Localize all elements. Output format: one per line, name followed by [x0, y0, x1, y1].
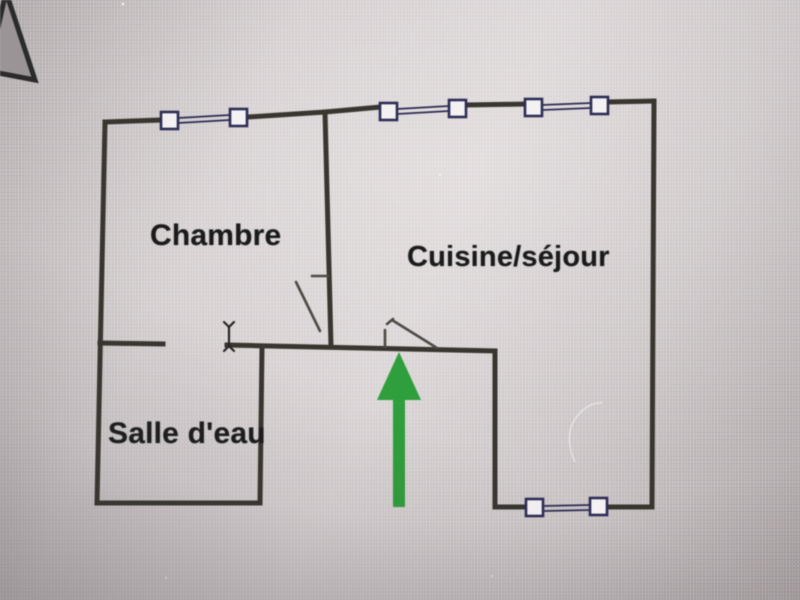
window-symbol-chambre-top [161, 109, 247, 129]
dust-speck [491, 575, 493, 577]
room-label-chambre: Chambre [150, 219, 281, 253]
window-symbol-cuisine-top-right [525, 97, 608, 116]
corner-triangle-shape [0, 0, 35, 80]
door-symbol-entrance [385, 319, 437, 348]
dust-speck [122, 3, 125, 6]
entrance-arrow-icon [377, 352, 421, 507]
photographed-screen: Chambre Cuisine/séjour Salle d'eau [0, 0, 800, 600]
room-label-cuisine-sejour: Cuisine/séjour [407, 241, 610, 274]
window-symbol-cuisine-bottom [526, 498, 607, 516]
door-symbol-chambre [296, 276, 328, 331]
floor-plan: Chambre Cuisine/séjour Salle d'eau [0, 0, 800, 600]
floor-plan-svg [0, 0, 800, 600]
screen-scratch [569, 403, 603, 462]
window-symbol-cuisine-top-left [380, 100, 466, 120]
room-label-salle-deau: Salle d'eau [108, 417, 266, 451]
dust-speck [439, 174, 441, 176]
dust-speck [165, 577, 167, 579]
